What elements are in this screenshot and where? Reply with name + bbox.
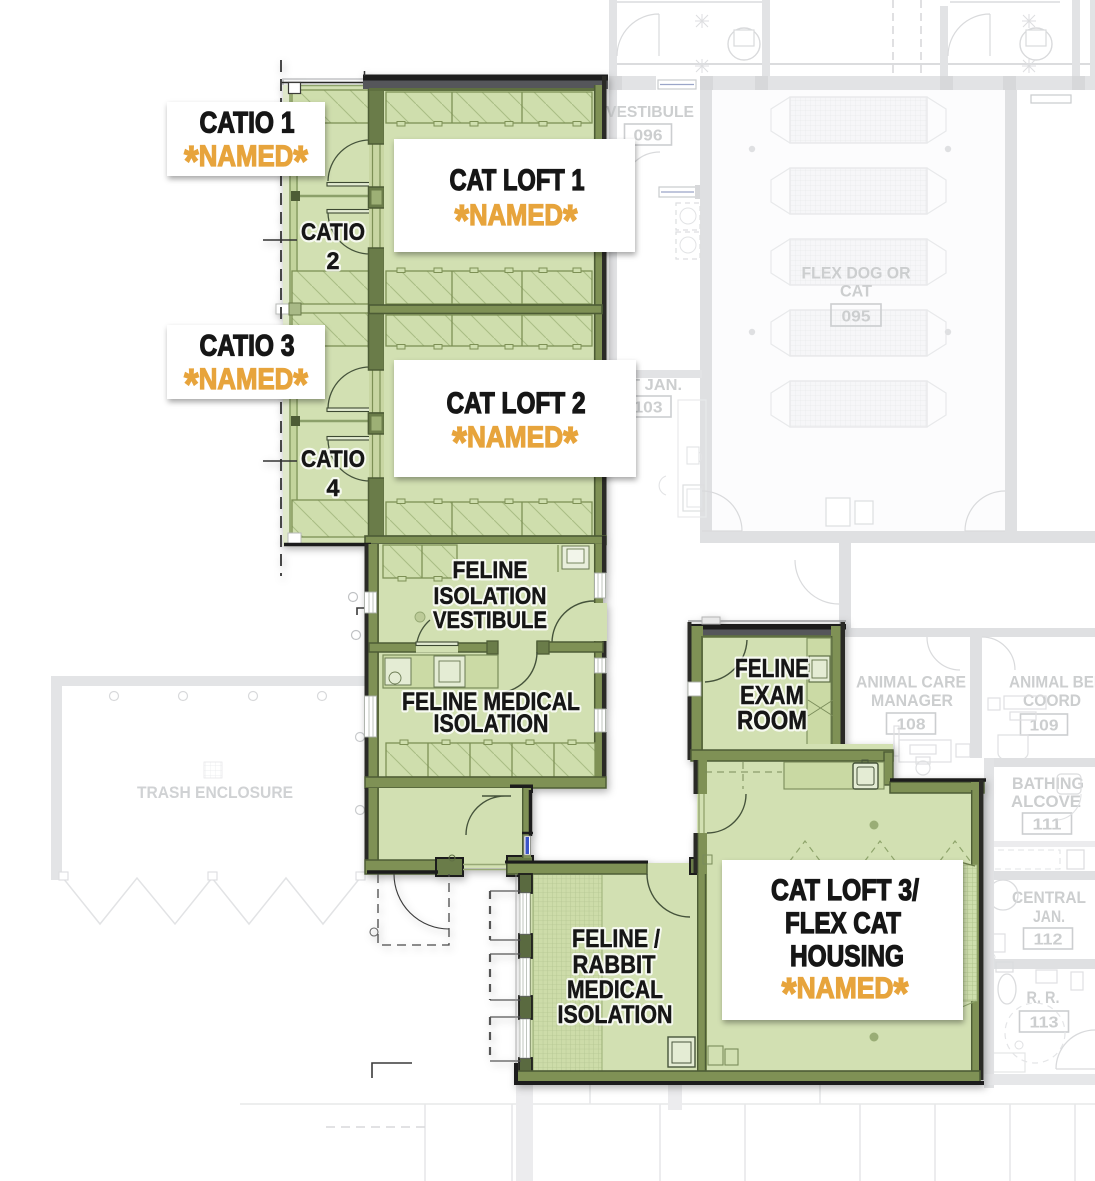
svg-text:CAT: CAT [840, 283, 872, 301]
svg-text:112: 112 [1034, 932, 1063, 949]
svg-text:113: 113 [1030, 1015, 1059, 1032]
svg-text:JAN.: JAN. [1033, 908, 1065, 926]
svg-text:ANIMAL CARE: ANIMAL CARE [856, 674, 966, 692]
svg-text:4: 4 [327, 475, 341, 502]
svg-text:FLEX CAT: FLEX CAT [785, 907, 901, 940]
svg-text:R. R.: R. R. [1027, 989, 1060, 1007]
svg-text:2: 2 [327, 248, 340, 275]
svg-text:CATIO: CATIO [301, 446, 365, 473]
svg-text:CAT LOFT 2: CAT LOFT 2 [447, 387, 586, 420]
svg-text:CAT LOFT 1: CAT LOFT 1 [450, 164, 585, 197]
svg-text:MANAGER: MANAGER [871, 692, 953, 710]
svg-text:COORD: COORD [1023, 692, 1081, 710]
svg-text:ALCOVE: ALCOVE [1011, 793, 1081, 811]
svg-text:VESTIBULE: VESTIBULE [606, 104, 694, 121]
svg-text:ISOLATION: ISOLATION [558, 1001, 673, 1029]
svg-text:CATIO 3: CATIO 3 [200, 330, 295, 363]
svg-text:FELINE: FELINE [735, 653, 809, 683]
svg-text:111: 111 [1033, 817, 1062, 834]
svg-text:CAT LOFT 3/: CAT LOFT 3/ [771, 874, 920, 907]
svg-text:BATHING: BATHING [1012, 775, 1084, 793]
svg-text:FELINE: FELINE [453, 557, 528, 584]
svg-text:RABBIT: RABBIT [573, 951, 656, 979]
svg-text:ISOLATION: ISOLATION [434, 583, 547, 610]
svg-text:095: 095 [842, 309, 871, 326]
svg-text:MEDICAL: MEDICAL [567, 976, 663, 1004]
svg-text:ANIMAL BEH: ANIMAL BEH [1009, 674, 1095, 692]
svg-text:ISOLATION: ISOLATION [434, 710, 549, 738]
svg-text:103: 103 [634, 400, 663, 417]
svg-text:CATIO: CATIO [301, 219, 365, 246]
svg-text:108: 108 [897, 717, 926, 734]
svg-text:096: 096 [634, 128, 663, 145]
svg-text:HOUSING: HOUSING [790, 940, 904, 973]
svg-text:ROOM: ROOM [737, 705, 807, 735]
svg-text:T JAN.: T JAN. [630, 377, 682, 394]
svg-text:VESTIBULE: VESTIBULE [433, 607, 547, 634]
svg-text:TRASH ENCLOSURE: TRASH ENCLOSURE [137, 784, 293, 802]
svg-text:CATIO 1: CATIO 1 [200, 107, 295, 140]
svg-text:CENTRAL: CENTRAL [1012, 889, 1086, 907]
svg-text:FELINE /: FELINE / [572, 925, 660, 953]
svg-text:FLEX DOG OR: FLEX DOG OR [802, 265, 911, 283]
